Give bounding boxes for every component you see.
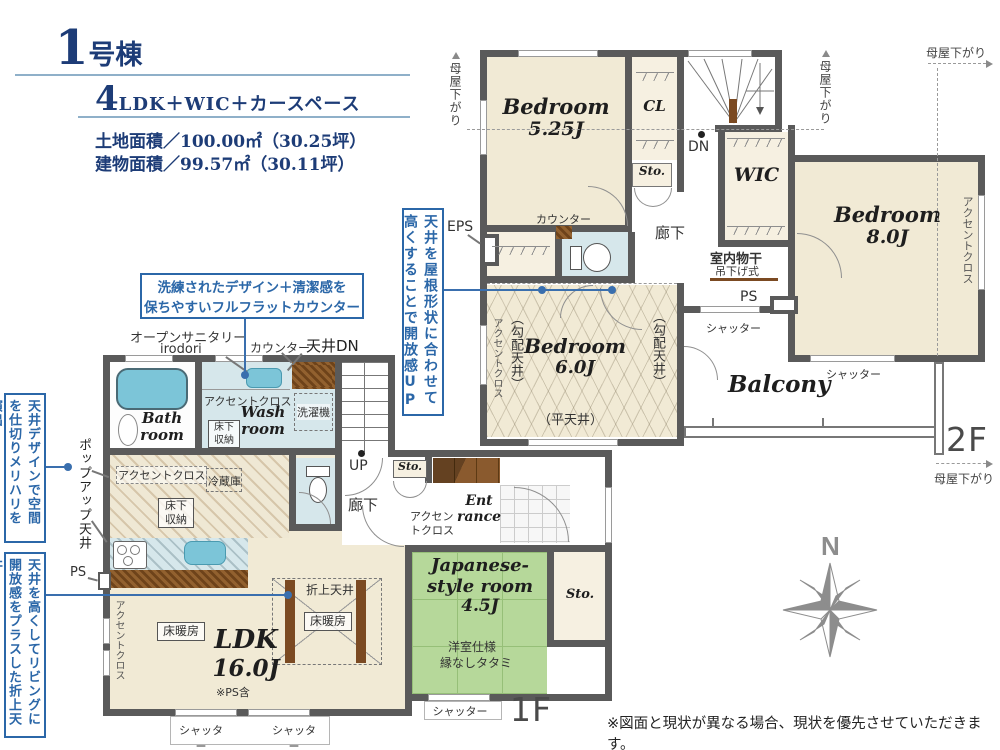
- accent-cloth-entrance: アクセン トクロス: [410, 510, 454, 538]
- window: [700, 306, 760, 313]
- window: [518, 50, 598, 57]
- window: [978, 195, 985, 290]
- floor2-label: 2F: [946, 420, 988, 459]
- ceiling-dn-label: 天井DN: [306, 335, 359, 356]
- room-name: rance: [455, 509, 503, 525]
- window: [605, 487, 612, 543]
- room-name: Bedroom: [805, 203, 970, 227]
- hanger-pipe: [727, 226, 785, 235]
- dn-dot: [698, 131, 705, 138]
- wall: [625, 57, 632, 232]
- moya-arrow-line: [928, 63, 986, 64]
- stairs-1f: [342, 362, 388, 452]
- callout-coffered-dot: [284, 591, 292, 599]
- door-arc: [410, 481, 427, 498]
- wall: [775, 50, 782, 132]
- moya-sagari-left: 母屋下がり: [447, 62, 464, 127]
- wall: [788, 162, 795, 362]
- plan-type: 4LDK＋WIC＋カースペース: [95, 79, 360, 119]
- plan-number: 4: [95, 79, 119, 119]
- hallway-2f-label: 廊下: [655, 222, 685, 243]
- moya-sagari-dash: [467, 129, 824, 130]
- balcony-railing: [684, 426, 944, 438]
- wall: [555, 232, 562, 283]
- hallway-1f-label: 廊下: [348, 494, 378, 515]
- washer-label: 洗濯機: [297, 404, 330, 420]
- sloped-ceiling-left: （勾配天井）: [506, 312, 525, 390]
- eps-label: EPS: [447, 219, 473, 235]
- wall: [547, 640, 612, 647]
- door-arc: [634, 188, 653, 207]
- accent-cloth-bedroom8: アクセントクロス: [959, 196, 975, 284]
- floorplan-page: 1号棟 4LDK＋WIC＋カースペース 土地面積／100.00㎡（30.25坪）…: [0, 0, 1000, 750]
- bathtub-icon: [116, 368, 188, 410]
- label-line: トクロス: [410, 524, 454, 538]
- wall: [103, 448, 342, 455]
- room-name: room: [127, 427, 197, 444]
- room-name: Bath: [127, 410, 197, 427]
- room-size: 16.0J: [196, 656, 296, 682]
- room-size: 8.0J: [805, 227, 970, 249]
- wall: [405, 545, 412, 716]
- fridge-label: 冷蔵庫: [208, 473, 241, 489]
- bedroom-8-label: Bedroom 8.0J: [805, 203, 970, 249]
- window: [528, 439, 618, 446]
- entrance-label: Ent rance: [455, 493, 503, 525]
- room-name: Ent: [455, 493, 503, 509]
- counter-dn-block: [292, 365, 332, 387]
- room-size: 4.5J: [417, 597, 543, 617]
- burner-icon: [123, 556, 133, 566]
- wall: [335, 362, 342, 455]
- plan-text: LDK＋WIC＋カースペース: [119, 94, 361, 115]
- moya-sagari-dashv: [937, 68, 938, 356]
- accent-cloth-bedroom6: アクセントクロス: [489, 318, 504, 398]
- ldk-label: LDK 16.0J: [196, 626, 296, 682]
- floor-heating-label: 床暖房: [304, 612, 352, 631]
- label-line: アクセン: [410, 510, 454, 524]
- callout-roof-dot-1: [538, 286, 546, 294]
- label-line: 床下: [209, 421, 239, 434]
- building-area: 建物面積／99.57㎡（30.11坪）: [95, 150, 354, 175]
- kitchen-sink-icon: [184, 541, 226, 565]
- railing-post: [822, 418, 824, 426]
- callout-roof-line: [444, 289, 614, 291]
- building-suffix: 号棟: [88, 40, 142, 71]
- shutter-label: シャッター: [706, 320, 761, 336]
- arrow-up-icon: [452, 52, 460, 59]
- wall: [405, 545, 612, 552]
- jroom-sub1: 洋室仕様: [448, 638, 496, 655]
- flat-ceiling-label: （平天井）: [538, 409, 603, 428]
- hanger-pipe: [636, 72, 674, 81]
- hanger-pipe: [492, 246, 550, 255]
- window: [103, 650, 110, 676]
- ldk-note: ※PS含: [216, 684, 250, 700]
- window: [215, 355, 263, 362]
- jroom-sub2: 縁なしタタミ: [440, 654, 512, 671]
- entrance-step: [433, 458, 500, 483]
- callout-coffered-line: [46, 594, 288, 596]
- ps-pointer: [88, 577, 98, 581]
- underfloor-storage-kitchen: 床下 収納: [158, 498, 194, 528]
- room-name: LDK: [196, 626, 296, 656]
- callout-roof-dot-2: [608, 286, 616, 294]
- window: [480, 325, 487, 385]
- callout-flat-counter: 洗練されたデザイン＋清潔感を 保ちやすいフルフラットカウンター: [140, 273, 364, 319]
- up-dot: [358, 450, 365, 457]
- wall: [677, 50, 684, 192]
- callout-partition-dot: [64, 463, 72, 471]
- wall: [335, 455, 342, 531]
- wall: [628, 232, 635, 283]
- ceiling-beam: [356, 580, 366, 663]
- ps-1f-label: PS: [70, 565, 86, 580]
- window: [175, 709, 237, 716]
- wall: [788, 155, 985, 162]
- bedroom-6-ceiling-line: [487, 283, 677, 284]
- moya-arrow-line: [936, 463, 986, 464]
- door-arc: [653, 188, 672, 207]
- ps-1f-box: [98, 572, 111, 590]
- sto-2f-label: Sto.: [632, 165, 672, 179]
- label-line: 収納: [159, 513, 193, 527]
- callout-coffered-line2: 開放感をプラスした折上天井: [0, 558, 21, 726]
- hanger-pipe: [636, 140, 674, 149]
- page-title: 1号棟: [55, 20, 142, 76]
- land-area: 土地面積／100.00㎡（30.25坪）: [95, 127, 366, 152]
- callout-coffered-line1: 天井を高くしてリビングに: [25, 558, 40, 726]
- room-name: Japanese-: [417, 556, 543, 577]
- arrow-right-icon: [986, 60, 993, 68]
- header-rule-2: [78, 116, 410, 118]
- floor-heating-label: 床暖房: [157, 622, 205, 641]
- callout-partition-line2: 仕切りメリハリを演出: [0, 399, 21, 525]
- header-rule-1: [15, 74, 410, 76]
- shutter-label: シャッター: [175, 722, 227, 750]
- ps-2f-label: PS: [740, 289, 757, 305]
- window: [428, 694, 490, 701]
- kitchen-counter-front: [110, 570, 248, 588]
- sloped-ceiling-right: （勾配天井）: [648, 310, 667, 388]
- wall: [677, 283, 684, 446]
- stairs-2f: [684, 57, 775, 125]
- counter-2f-block: [556, 226, 572, 239]
- callout-counter-dot: [241, 371, 249, 379]
- room-name: style room: [417, 577, 543, 598]
- toilet-tank-icon: [306, 466, 330, 477]
- coffered-label: 折上天井: [304, 581, 356, 598]
- railing-post: [712, 418, 714, 426]
- hanger-pipe: [727, 138, 785, 147]
- eps-pointer: [468, 234, 481, 244]
- window: [480, 100, 487, 155]
- callout-coffered-ceiling: 天井を高くしてリビングに開放感をプラスした折上天井: [4, 552, 46, 738]
- wall: [718, 125, 725, 247]
- compass-icon: N: [765, 515, 895, 665]
- wall: [718, 240, 795, 247]
- window: [810, 355, 895, 362]
- room-name: Bedroom: [487, 95, 625, 119]
- wall: [388, 355, 395, 457]
- shutter-label: シャッター: [826, 366, 881, 382]
- dn-label: DN: [688, 139, 709, 155]
- wash-counter-line: [202, 389, 290, 390]
- window: [688, 50, 752, 57]
- door-arc: [684, 346, 718, 380]
- bath-label: Bath room: [127, 410, 197, 445]
- callout-roof-line2: 高くすることで開放感UP: [402, 214, 418, 410]
- cl-top-label: CL: [632, 98, 677, 115]
- bedroom-525-label: Bedroom 5.25J: [487, 95, 625, 141]
- shutter-label: シャッター: [268, 722, 320, 750]
- moya-sagari-stairs: 母屋下がり: [817, 60, 834, 125]
- wash-basin-icon: [246, 368, 282, 388]
- callout-roof-line1: 天井を屋根形状に合わせて: [422, 214, 438, 406]
- floor1-label: 1F: [510, 690, 552, 729]
- toilet-bowl-icon: [583, 243, 611, 272]
- ps-2f-box: [770, 296, 798, 314]
- balcony-railing-side: [934, 362, 944, 455]
- disclaimer-text: ※図面と現状が異なる場合、現状を優先させていただきます。: [607, 712, 1000, 750]
- label-line: 床下: [159, 499, 193, 513]
- svg-text:N: N: [821, 531, 840, 561]
- toilet-tank-icon: [570, 246, 582, 270]
- accent-cloth-wash: アクセントクロス: [204, 393, 291, 409]
- underfloor-storage-wash: 床下 収納: [208, 420, 240, 448]
- accent-cloth-kitchen: アクセントクロス: [116, 466, 207, 484]
- drying-pole-line: [710, 278, 778, 281]
- callout-ceiling-partition: 天井デザインで空間を仕切りメリハリを演出: [4, 393, 46, 543]
- wall: [547, 552, 554, 647]
- moya-sagari-bottomright: 母屋下がり: [934, 470, 994, 487]
- label-line: 収納: [209, 434, 239, 447]
- callout-counter-line1: 洗練されたデザイン＋清潔感を: [142, 278, 362, 298]
- arrow-up-icon: [822, 50, 830, 57]
- indoor-drying-sub: 吊下げ式: [715, 263, 759, 279]
- callout-counter-line: [244, 319, 246, 373]
- sto-hall-label: Sto.: [393, 460, 427, 478]
- sto-right-label: Sto.: [562, 588, 598, 603]
- building-number: 1: [55, 20, 88, 76]
- moya-sagari-topright: 母屋下がり: [926, 44, 986, 61]
- room-size: 5.25J: [487, 119, 625, 141]
- window: [248, 709, 310, 716]
- burner-icon: [130, 545, 140, 555]
- wic-label: WIC: [725, 165, 788, 187]
- shutter-label: シャッター: [432, 703, 488, 719]
- window: [103, 618, 110, 644]
- popup-ceiling-label: ポップアップ天井: [74, 438, 93, 550]
- stairs-1f-rail: [364, 362, 365, 452]
- arrow-right-icon: [986, 460, 993, 468]
- japanese-room-label: Japanese- style room 4.5J: [417, 556, 543, 617]
- callout-roof-ceiling: 天井を屋根形状に合わせて高くすることで開放感UP: [402, 208, 444, 416]
- irodori-label: irodori: [160, 342, 202, 357]
- burner-icon: [117, 545, 127, 555]
- counter-2f-label: カウンター: [536, 211, 591, 227]
- wall: [289, 455, 296, 531]
- callout-counter-line2: 保ちやすいフルフラットカウンター: [142, 298, 362, 318]
- accent-cloth-ldk: アクセントクロス: [111, 600, 126, 680]
- wall: [395, 450, 612, 457]
- balcony-label: Balcony: [728, 372, 814, 398]
